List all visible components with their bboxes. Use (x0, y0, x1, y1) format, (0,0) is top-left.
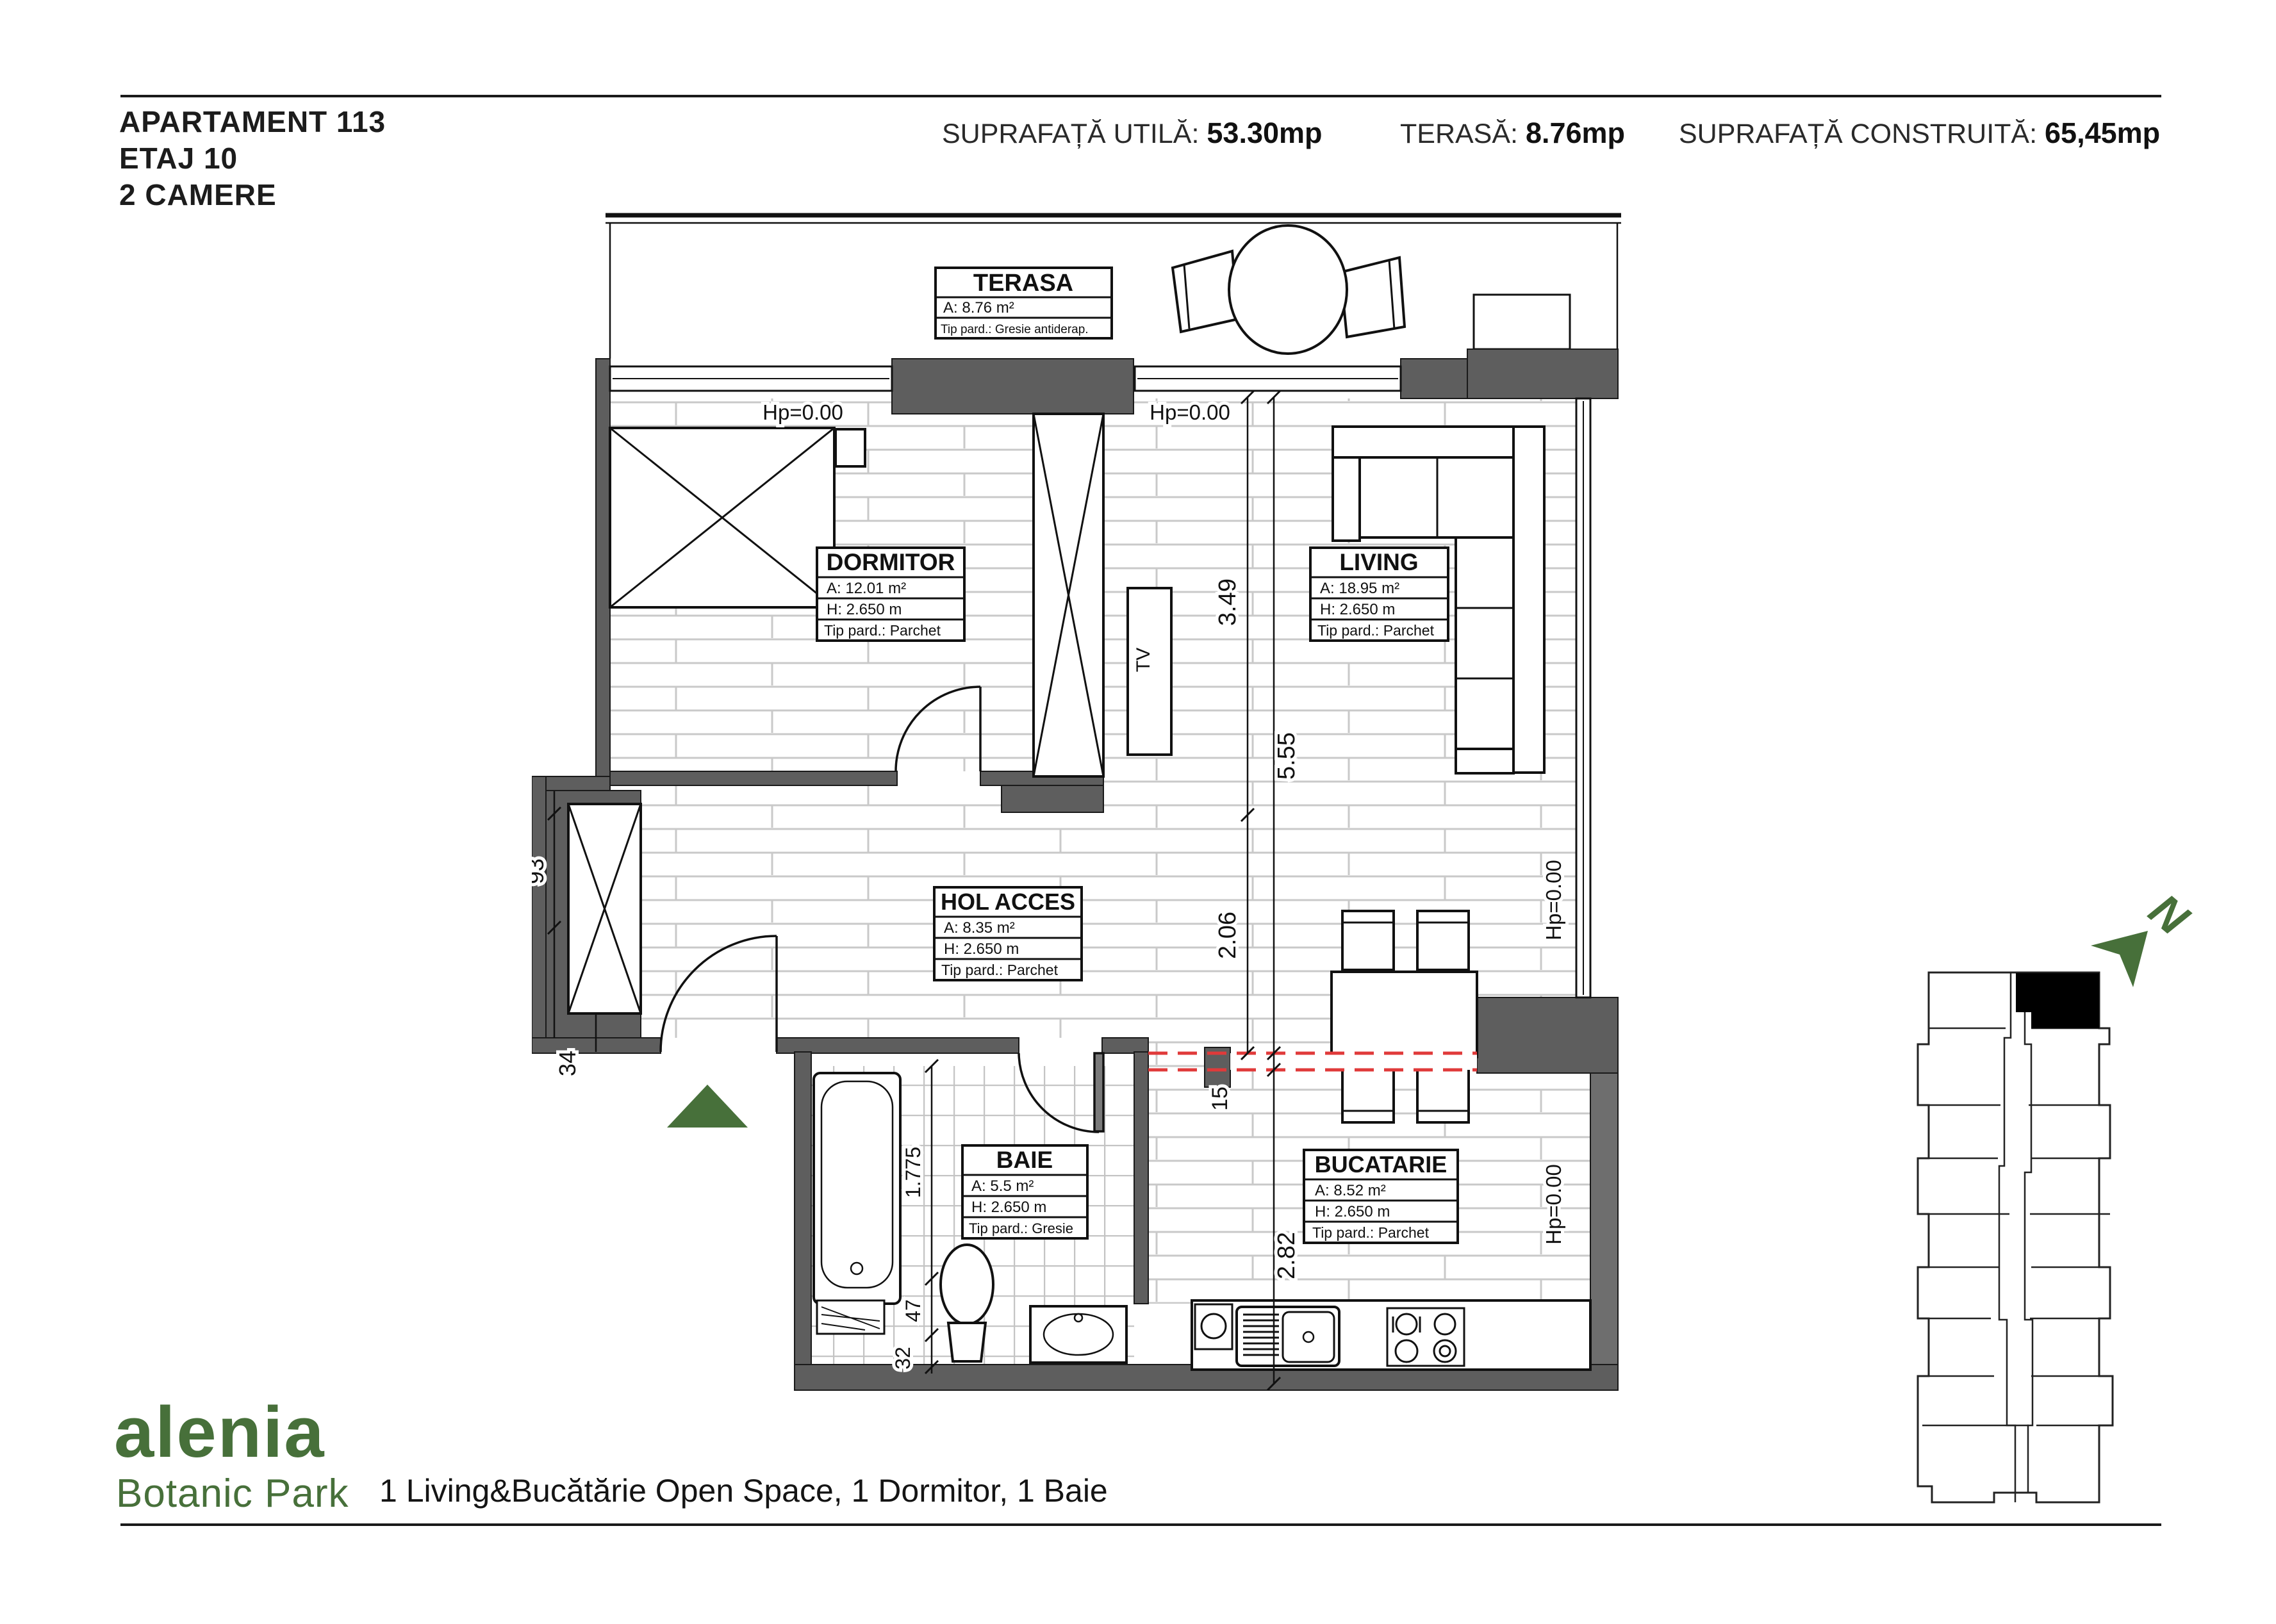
bottom-divider (120, 1523, 2161, 1526)
apartment-description: 1 Living&Bucătărie Open Space, 1 Dormito… (379, 1472, 1108, 1509)
room-floor-type: Tip pard.: Parchet (1312, 1224, 1430, 1241)
stat-useful-area: SUPRAFAȚĂ UTILĂ: 53.30mp (942, 117, 1323, 150)
bathroom-door-leaf (1094, 1053, 1103, 1131)
building-outline (1918, 972, 2113, 1502)
dim-93: 93 (532, 858, 548, 884)
bathtub (814, 1073, 900, 1304)
stat-label: TERASĂ: (1400, 119, 1518, 149)
floorplan-page: APARTAMENT 113 ETAJ 10 2 CAMERE SUPRAFAȚ… (0, 0, 2276, 1624)
room-area: A: 8.35 m² (944, 919, 1015, 937)
room-floor-type: Tip pard.: Parchet (941, 962, 1059, 978)
nightstand (836, 429, 865, 466)
room-name: LIVING (1339, 549, 1418, 575)
apartment-title: APARTAMENT 113 (119, 104, 386, 140)
bath-mat (817, 1300, 884, 1334)
room-area: A: 8.52 m² (1315, 1182, 1386, 1199)
dining-chair (1342, 1063, 1394, 1122)
room-height: H: 2.650 m (827, 601, 902, 618)
dim-34: 34 (554, 1051, 581, 1076)
stat-label: SUPRAFAȚĂ UTILĂ: (942, 119, 1199, 149)
dim-2-82: 2.82 (1273, 1232, 1300, 1279)
hp-top-right: Hp=0.00 (1150, 400, 1230, 424)
hp-top-left: Hp=0.00 (763, 400, 843, 424)
brand-logo: alenia (114, 1400, 326, 1464)
apartment-header: APARTAMENT 113 ETAJ 10 2 CAMERE (119, 104, 386, 213)
stat-built-area: SUPRAFAȚĂ CONSTRUITĂ: 65,45mp (1679, 117, 2160, 150)
room-label-terasa: TERASA A: 8.76 m² Tip pard.: Gresie anti… (936, 268, 1112, 338)
stat-value: 53.30mp (1207, 117, 1322, 149)
room-floor-type: Tip pard.: Parchet (824, 622, 941, 639)
room-name: DORMITOR (827, 549, 955, 575)
room-name: BUCATARIE (1315, 1151, 1447, 1177)
room-name: TERASA (973, 270, 1073, 297)
room-height: H: 2.650 m (944, 940, 1019, 958)
apartment-rooms: 2 CAMERE (119, 177, 386, 213)
room-height: H: 2.650 m (1315, 1203, 1390, 1220)
dim-32: 32 (891, 1347, 914, 1370)
room-floor-type: Tip pard.: Gresie (969, 1220, 1073, 1236)
room-height: H: 2.650 m (971, 1199, 1046, 1216)
room-area: A: 12.01 m² (827, 580, 906, 597)
tv-unit: TV (1128, 588, 1171, 755)
bathroom-sink (1030, 1306, 1126, 1363)
room-label-hol: HOL ACCES A: 8.35 m² H: 2.650 m Tip pard… (934, 887, 1082, 980)
north-letter: N (2140, 884, 2198, 946)
stat-value: 8.76mp (1526, 117, 1625, 149)
room-label-bucatarie: BUCATARIE A: 8.52 m² H: 2.650 m Tip pard… (1304, 1150, 1458, 1243)
room-height: H: 2.650 m (1320, 601, 1395, 618)
stat-terrace-area: TERASĂ: 8.76mp (1400, 117, 1625, 150)
hp-right-upper: Hp=0.00 (1542, 860, 1565, 940)
room-label-baie: BAIE A: 5.5 m² H: 2.650 m Tip pard.: Gre… (962, 1145, 1087, 1238)
room-area: A: 8.76 m² (943, 299, 1014, 316)
dining-chair (1342, 911, 1394, 970)
floor-plan: TV (532, 211, 1640, 1403)
hp-right-lower: Hp=0.00 (1542, 1164, 1565, 1245)
building-key-plan (1897, 961, 2166, 1538)
kitchen-counter (1192, 1300, 1590, 1370)
apartment-floor: ETAJ 10 (119, 140, 386, 177)
stat-label: SUPRAFAȚĂ CONSTRUITĂ: (1679, 119, 2037, 149)
dim-2-06: 2.06 (1214, 912, 1241, 959)
room-name: HOL ACCES (941, 889, 1075, 915)
top-divider (120, 95, 2161, 97)
dim-47: 47 (902, 1299, 925, 1322)
entrance-arrow (667, 1085, 748, 1128)
room-label-living: LIVING A: 18.95 m² H: 2.650 m Tip pard.:… (1310, 548, 1448, 641)
dim-15: 15 (1208, 1087, 1232, 1111)
dining-table (1332, 972, 1477, 1057)
dining-chair (1417, 1063, 1469, 1122)
room-floor-type: Tip pard.: Parchet (1317, 622, 1435, 639)
dim-5-55: 5.55 (1273, 732, 1300, 780)
room-floor-type: Tip pard.: Gresie antiderap. (941, 323, 1089, 336)
terrace-edge (606, 215, 1621, 359)
tv-label: TV (1133, 648, 1154, 672)
terrace-planter (1474, 295, 1570, 349)
terrace-table (1173, 226, 1405, 354)
room-area: A: 5.5 m² (971, 1177, 1034, 1195)
room-label-dormitor: DORMITOR A: 12.01 m² H: 2.650 m Tip pard… (817, 548, 964, 641)
dim-3-49: 3.49 (1214, 578, 1241, 626)
dining-chair (1417, 911, 1469, 970)
room-area: A: 18.95 m² (1320, 580, 1399, 597)
room-name: BAIE (996, 1147, 1053, 1173)
dim-1-775: 1.775 (902, 1147, 925, 1198)
stat-value: 65,45mp (2045, 117, 2160, 149)
brand-subtitle: Botanic Park (116, 1471, 349, 1516)
